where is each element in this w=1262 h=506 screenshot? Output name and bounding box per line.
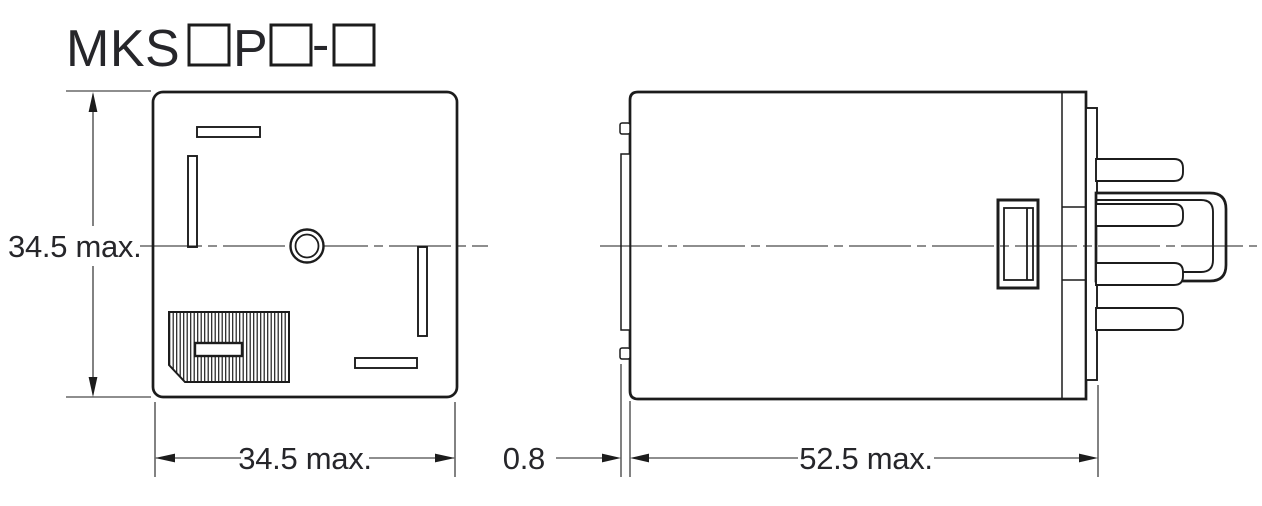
- front-mounting-lip: [621, 154, 630, 330]
- front-width-label: 34.5 max.: [238, 441, 371, 476]
- front-height-dimension: 34.5 max.: [8, 91, 151, 397]
- blank-suffix-box-2: [271, 25, 311, 65]
- arrowhead-down: [89, 377, 98, 397]
- arrowhead-up: [89, 92, 98, 112]
- arrowhead-right: [1079, 454, 1098, 463]
- terminal-pin-2: [1096, 204, 1183, 226]
- arrowhead-right: [435, 454, 455, 463]
- product-code-separator: -: [312, 16, 330, 74]
- blank-suffix-box-1: [189, 25, 229, 65]
- arrowhead-right: [602, 454, 621, 463]
- product-code-prefix: MKS: [66, 20, 180, 78]
- product-code-infix: P: [233, 20, 268, 78]
- front-slot-top: [197, 127, 260, 137]
- marking-window: [195, 343, 242, 356]
- terminal-pin-3: [1096, 263, 1183, 285]
- terminal-pin-4: [1096, 308, 1183, 330]
- side-view: [600, 92, 1257, 399]
- flange-thickness-label: 0.8: [503, 441, 545, 476]
- front-width-dimension: 34.5 max.: [155, 402, 455, 477]
- blank-suffix-box-3: [334, 25, 374, 65]
- flange-thickness-dimension: 0.8: [503, 364, 630, 477]
- arrowhead-left: [630, 454, 649, 463]
- product-code-title: MKS P -: [66, 16, 374, 78]
- relay-dimension-drawing: MKS P - 34.5 max. 34.5 max.: [0, 0, 1262, 506]
- front-slot-left: [188, 156, 197, 247]
- front-height-label: 34.5 max.: [8, 229, 141, 264]
- terminal-pin-1: [1096, 159, 1183, 181]
- lip-tab-bottom: [620, 348, 630, 359]
- front-slot-right: [418, 247, 427, 336]
- lip-tab-top: [620, 123, 630, 134]
- depth-label: 52.5 max.: [799, 441, 932, 476]
- drawing-canvas: MKS P - 34.5 max. 34.5 max.: [0, 0, 1262, 506]
- front-view: [140, 92, 488, 397]
- arrowhead-left: [155, 454, 175, 463]
- front-slot-bottom: [355, 358, 417, 368]
